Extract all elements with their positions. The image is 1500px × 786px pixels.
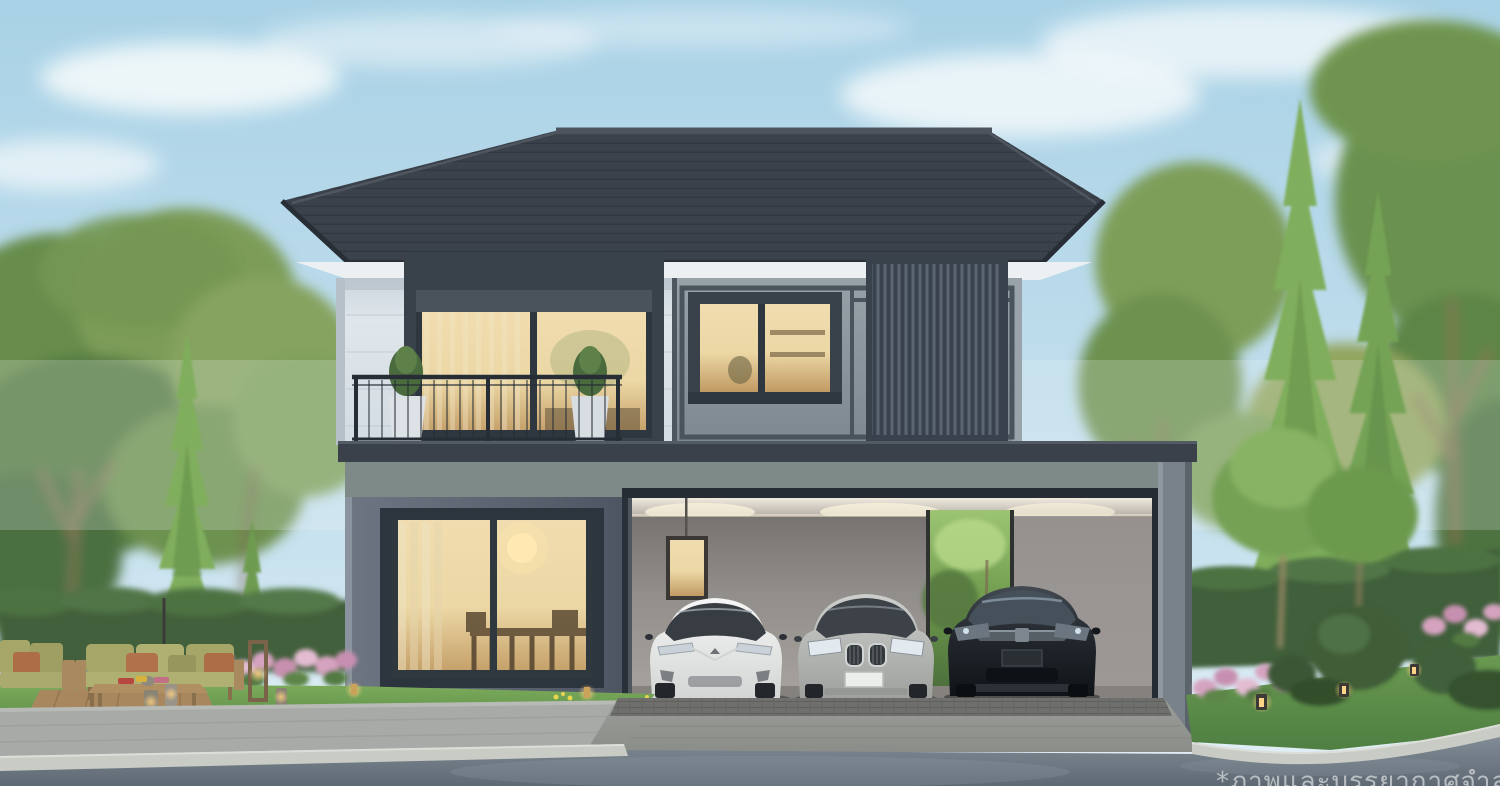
cobble-band (610, 698, 1172, 716)
watermark-text: *ภาพและบรรยากาศจำลอง (1216, 761, 1500, 786)
balcony-sliding-door (404, 252, 664, 443)
vertical-louver-panel (866, 258, 1008, 441)
second-floor (336, 252, 1022, 445)
upper-bedroom-window (688, 292, 842, 404)
render-canvas (0, 0, 1500, 786)
carport-service-window (666, 536, 708, 600)
upper-gray-panel-section (672, 258, 1022, 445)
black-suv-license-plate (1002, 650, 1042, 666)
carport (622, 488, 1162, 706)
architectural-render: *ภาพและบรรยากาศจำลอง (0, 0, 1500, 786)
silver-suv-license-plate (845, 672, 883, 687)
driveway-apron (586, 698, 1204, 752)
dining-room-window (380, 508, 604, 688)
